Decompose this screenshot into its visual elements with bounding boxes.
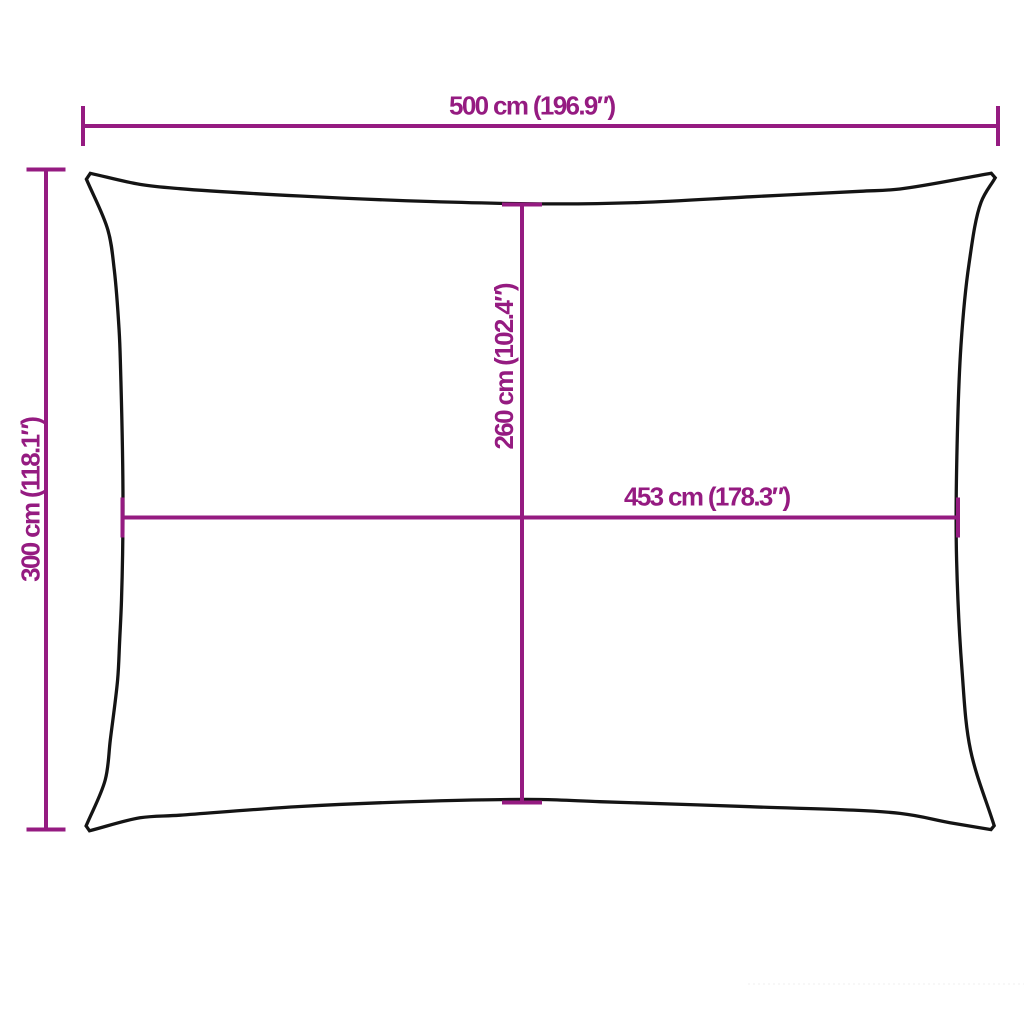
svg-text:453 cm (178.3″): 453 cm (178.3″) xyxy=(624,481,790,511)
svg-text:500 cm (196.9″): 500 cm (196.9″) xyxy=(449,91,615,121)
svg-text:260 cm (102.4″): 260 cm (102.4″) xyxy=(489,283,519,449)
svg-text:300 cm (118.1″): 300 cm (118.1″) xyxy=(16,417,46,582)
